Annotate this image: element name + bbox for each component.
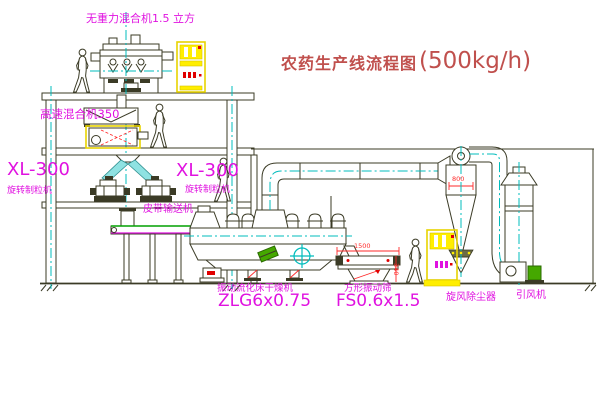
control-cabinet-top: [177, 42, 205, 92]
person-top-floor: [74, 49, 90, 92]
label-granulator-right: 旋转制粒机: [185, 186, 230, 195]
exhaust-duct: [252, 156, 450, 228]
dim-screen-length: 1500: [354, 243, 371, 250]
title-capacity: (500kg/h): [419, 48, 531, 74]
flow-diagram-canvas: 农药生产线流程图 (500kg/h) 无重力混合机1.5 立方 高速混合机350…: [0, 0, 600, 403]
cyclone-separator: [446, 146, 476, 277]
diagram-title: 农药生产线流程图 (500kg/h): [281, 48, 531, 74]
label-gravity-mixer: 无重力混合机1.5 立方: [86, 13, 195, 24]
belt-conveyor: [111, 208, 201, 283]
label-fan: 引风机: [516, 291, 546, 301]
foundation-hatch: [41, 285, 596, 291]
label-granulator-left: 旋转制粒机: [7, 187, 52, 196]
granulator-left: [90, 176, 130, 202]
fan-stack: [469, 147, 544, 285]
vibrating-screen: [336, 247, 400, 284]
person-mid-floor: [151, 104, 167, 147]
title-text: 农药生产线流程图: [281, 50, 417, 74]
dim-cyclone-body: 800: [452, 176, 464, 183]
label-second-mixer: 高速混合机350: [40, 109, 119, 121]
label-belt-conveyor: 皮带输送机: [143, 205, 193, 215]
second-mixer: [84, 95, 148, 148]
label-xl300-left: XL-300: [7, 161, 70, 179]
label-dryer-model: ZLG6x0.75: [218, 293, 311, 310]
label-cyclone: 旋风除尘器: [446, 293, 496, 303]
label-xl300-right: XL-300: [176, 162, 239, 180]
granulator-right: [136, 176, 176, 202]
dim-screen-height: 340: [393, 263, 400, 275]
label-screen-model: FS0.6x1.5: [336, 293, 420, 310]
person-ground: [407, 239, 423, 282]
